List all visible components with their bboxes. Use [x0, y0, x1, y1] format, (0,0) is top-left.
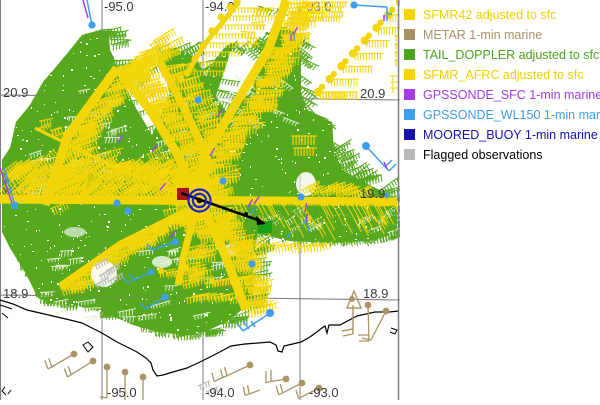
svg-text:18.9: 18.9	[363, 286, 388, 301]
svg-text:GPSSONDE_WL150 1-min marine: GPSSONDE_WL150 1-min marine	[423, 108, 600, 122]
svg-text:19.9: 19.9	[360, 186, 385, 201]
svg-text:-93.0: -93.0	[309, 385, 339, 400]
svg-text:20.9: 20.9	[3, 85, 28, 100]
svg-text:20.9: 20.9	[360, 86, 385, 101]
svg-text:GPSSONDE_SFC 1-min marine: GPSSONDE_SFC 1-min marine	[423, 88, 600, 102]
svg-text:SFMR42 adjusted to sfc: SFMR42 adjusted to sfc	[423, 8, 556, 22]
svg-text:MOORED_BUOY 1-min marine: MOORED_BUOY 1-min marine	[423, 128, 598, 142]
svg-text:18.9: 18.9	[3, 286, 28, 301]
svg-text:-95.0: -95.0	[104, 0, 134, 14]
svg-text:TAIL_DOPPLER adjusted to sfc: TAIL_DOPPLER adjusted to sfc	[423, 48, 599, 62]
svg-text:SFMR_AFRC adjusted to sfc: SFMR_AFRC adjusted to sfc	[423, 68, 583, 82]
svg-text:Flagged observations: Flagged observations	[423, 148, 543, 162]
svg-text:-94.0: -94.0	[205, 385, 235, 400]
svg-text:METAR 1-min marine: METAR 1-min marine	[423, 28, 542, 42]
svg-text:-95.0: -95.0	[107, 385, 137, 400]
